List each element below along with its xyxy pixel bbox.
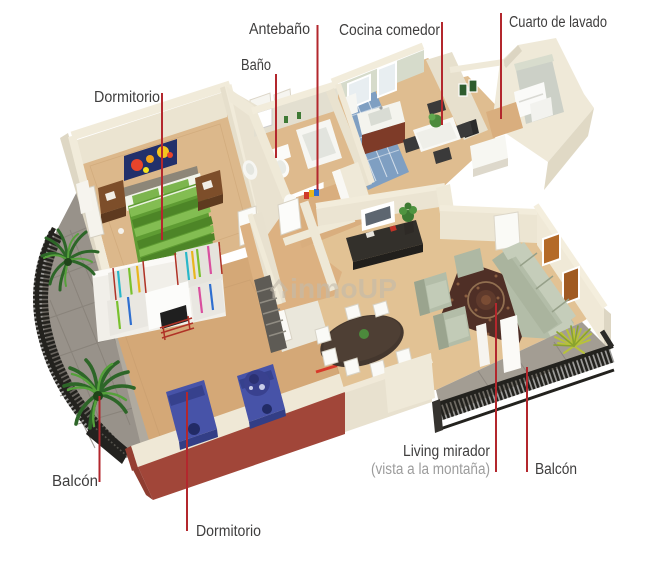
- svg-text:Balcón: Balcón: [535, 461, 577, 478]
- svg-text:Living mirador: Living mirador: [403, 443, 490, 460]
- svg-text:Dormitorio: Dormitorio: [94, 89, 160, 106]
- svg-text:Antebaño: Antebaño: [249, 21, 310, 38]
- svg-text:Dormitorio: Dormitorio: [196, 523, 261, 540]
- svg-text:Balcón: Balcón: [52, 473, 98, 490]
- svg-text:Baño: Baño: [241, 57, 271, 74]
- svg-text:Cocina comedor: Cocina comedor: [339, 22, 440, 39]
- svg-text:inmoUP: inmoUP: [290, 273, 397, 304]
- svg-text:Cuarto de lavado: Cuarto de lavado: [509, 14, 607, 31]
- svg-text:(vista a la montaña): (vista a la montaña): [371, 461, 490, 478]
